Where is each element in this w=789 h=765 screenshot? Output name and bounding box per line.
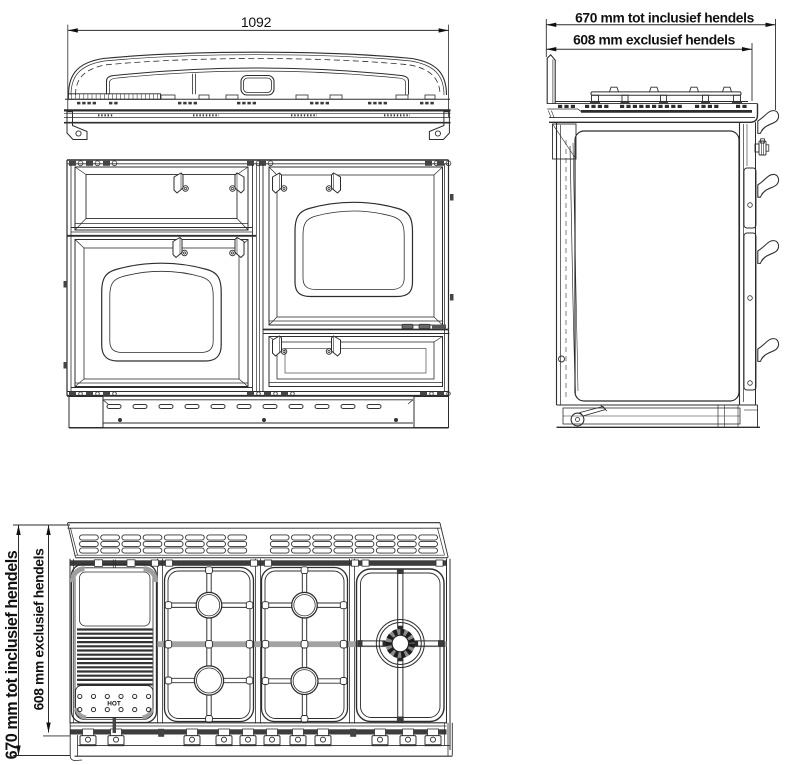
svg-text:608 mm exclusief hendels: 608 mm exclusief hendels — [32, 548, 47, 711]
svg-text:HOT: HOT — [107, 701, 121, 708]
svg-text:608 mm exclusief hendels: 608 mm exclusief hendels — [573, 33, 736, 48]
svg-text:1092: 1092 — [241, 14, 272, 30]
svg-text:670 mm tot inclusief hendels: 670 mm tot inclusief hendels — [3, 550, 21, 759]
svg-text:670 mm tot inclusief hendels: 670 mm tot inclusief hendels — [575, 11, 754, 26]
